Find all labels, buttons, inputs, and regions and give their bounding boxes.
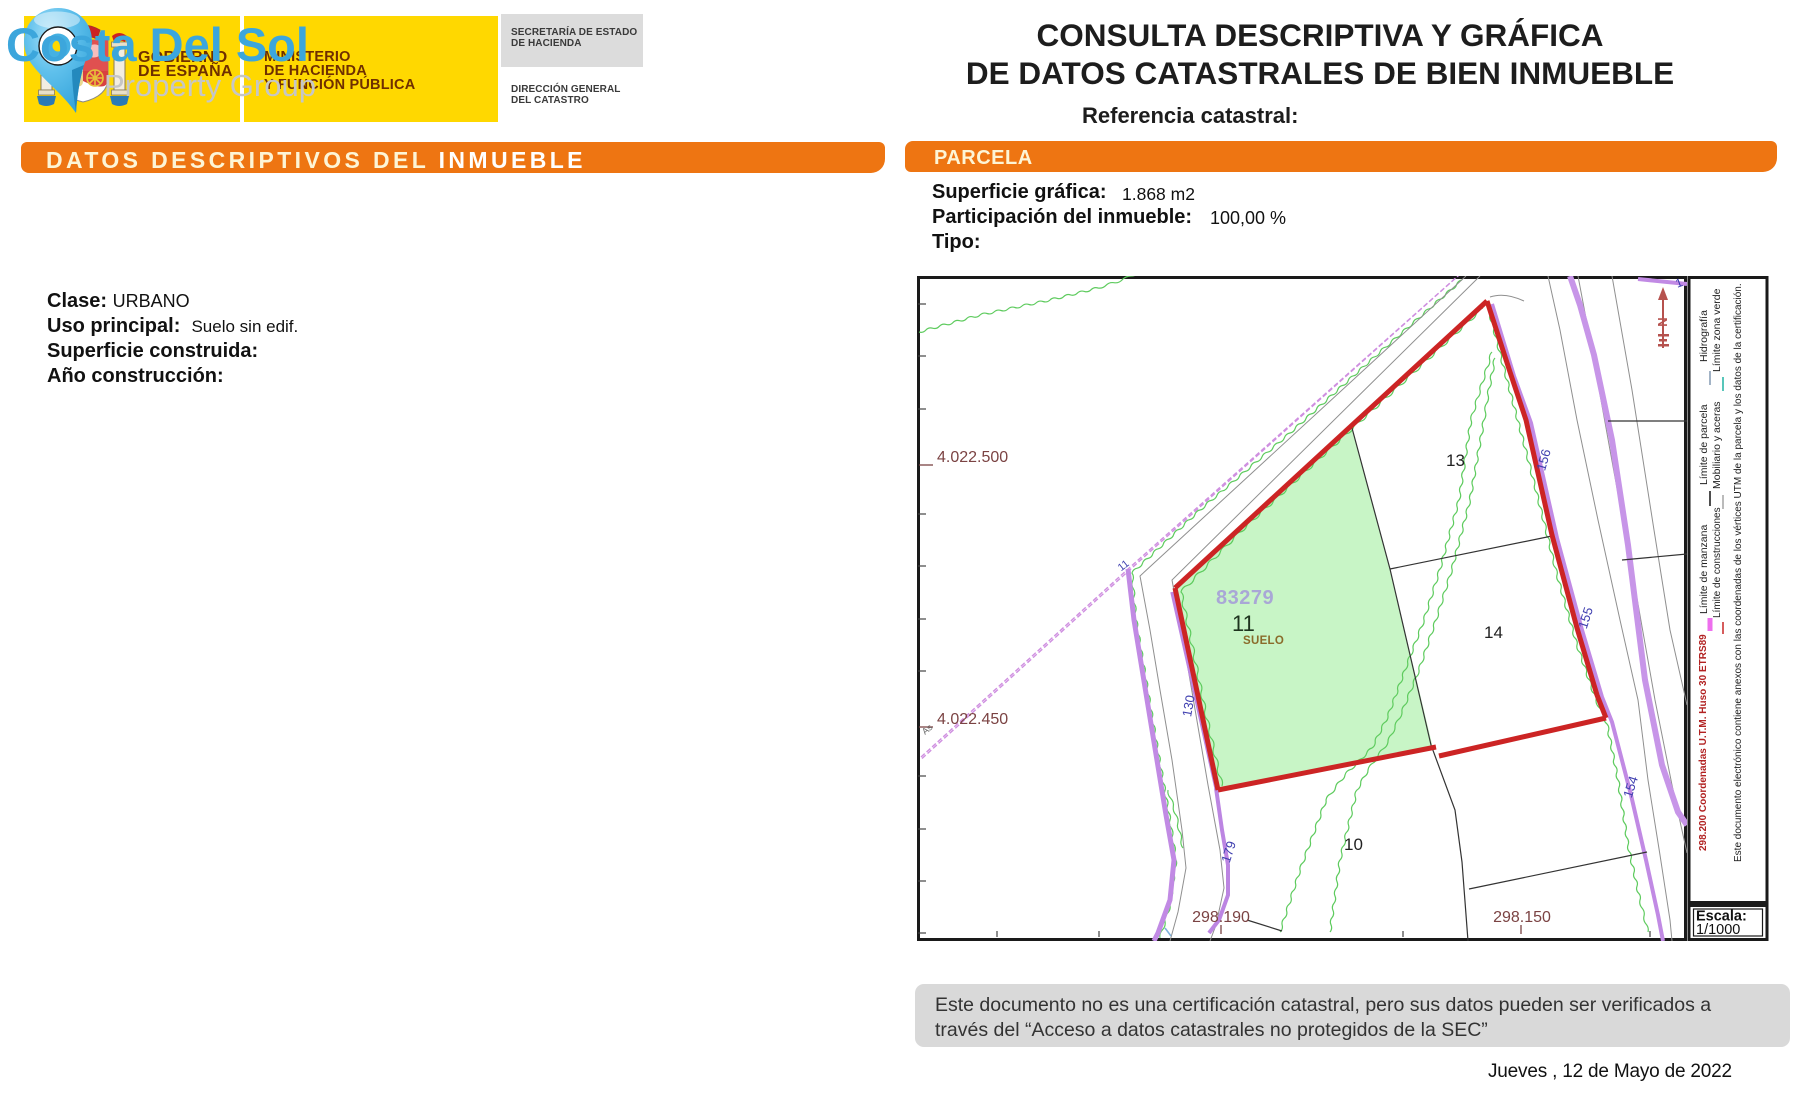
svg-text:Límite de construcciones: Límite de construcciones <box>1712 507 1723 618</box>
svg-text:83279: 83279 <box>1216 587 1274 609</box>
svg-text:N: N <box>1655 317 1670 326</box>
svg-text:1/1000: 1/1000 <box>1696 922 1740 938</box>
svg-text:4.022.450: 4.022.450 <box>937 711 1008 728</box>
svg-text:13: 13 <box>1446 451 1465 470</box>
svg-text:4.022.500: 4.022.500 <box>937 449 1008 466</box>
svg-text:Límite de parcela: Límite de parcela <box>1698 404 1710 485</box>
svg-text:298.200 Coordenadas U.T.M. Hus: 298.200 Coordenadas U.T.M. Huso 30 ETRS8… <box>1698 634 1709 851</box>
svg-text:Límite zona verde: Límite zona verde <box>1711 288 1723 372</box>
svg-text:Mobiliario y aceras: Mobiliario y aceras <box>1711 401 1723 489</box>
svg-text:Hidrografía: Hidrografía <box>1698 310 1710 362</box>
svg-text:298.150: 298.150 <box>1493 909 1551 926</box>
svg-text:11: 11 <box>1232 611 1255 636</box>
svg-text:298.190: 298.190 <box>1192 909 1250 926</box>
svg-text:Este documento electrónico con: Este documento electrónico contiene anex… <box>1733 283 1744 862</box>
svg-text:Límite de manzana: Límite de manzana <box>1698 525 1710 614</box>
svg-text:10: 10 <box>1344 835 1363 854</box>
svg-text:14: 14 <box>1484 623 1503 642</box>
svg-text:SUELO: SUELO <box>1243 635 1284 647</box>
